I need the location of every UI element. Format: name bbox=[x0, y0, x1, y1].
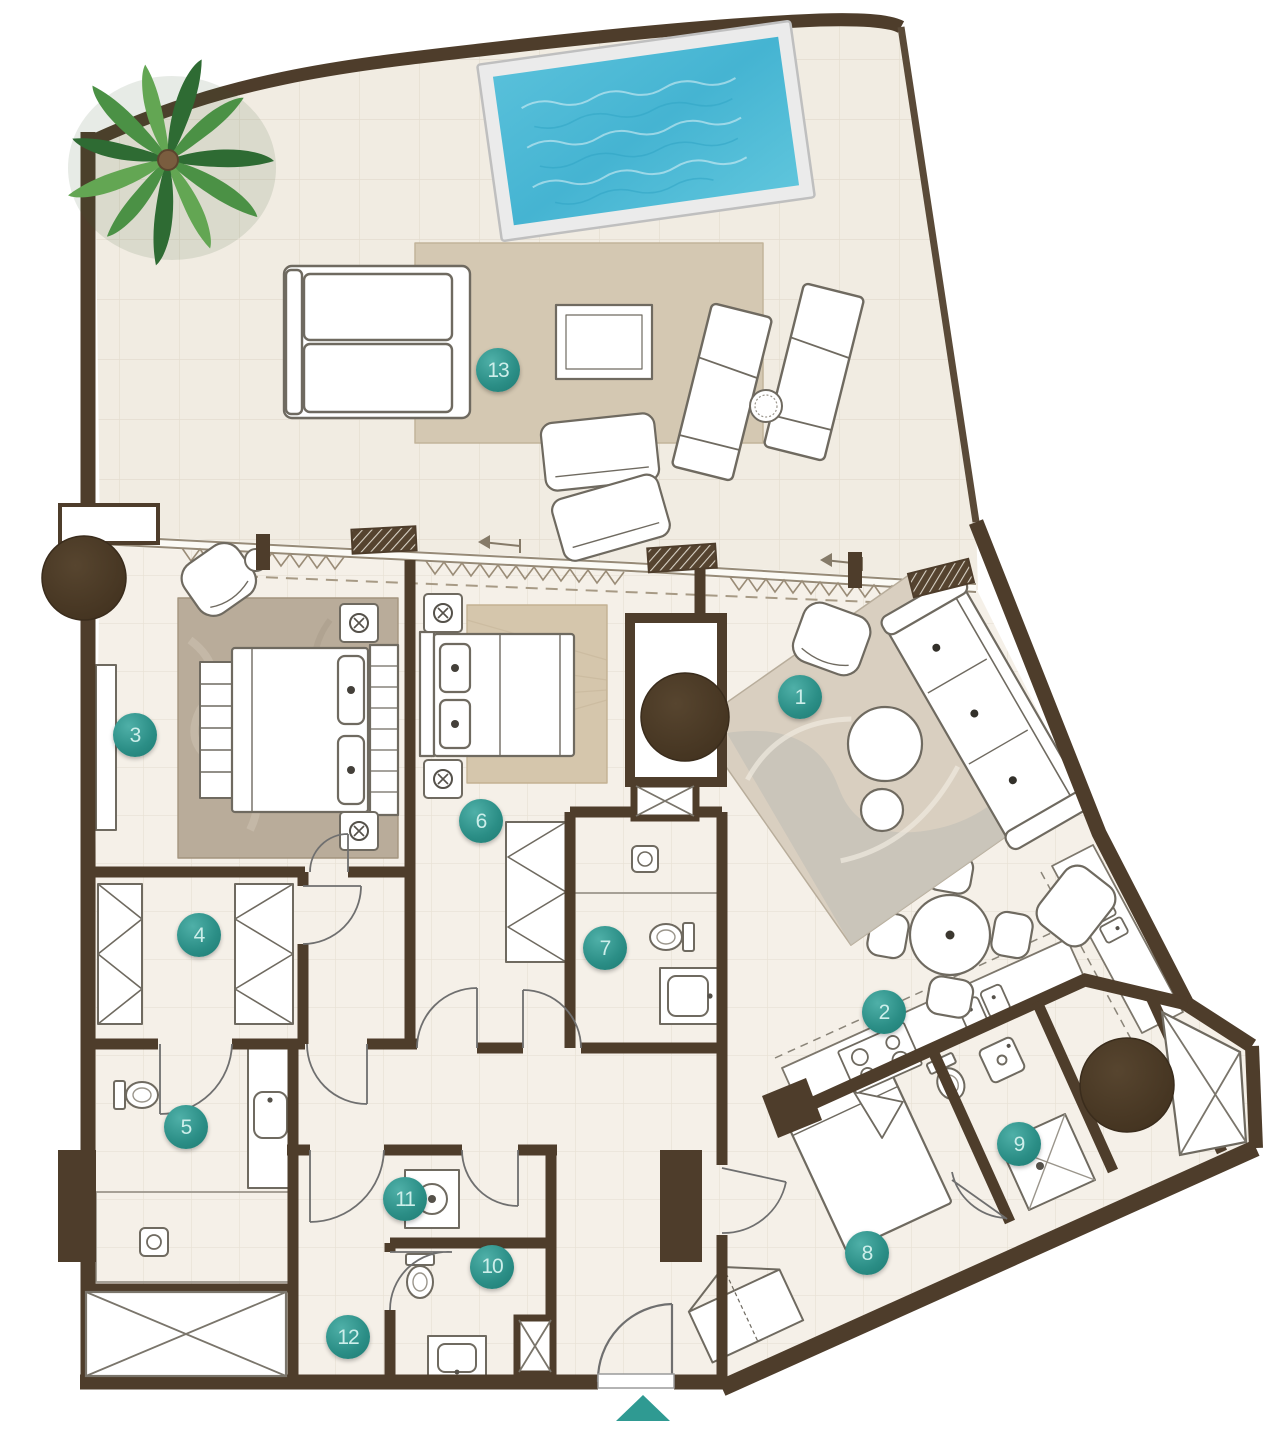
outdoor-sofa-icon bbox=[284, 266, 470, 418]
column-icon bbox=[1080, 1038, 1174, 1132]
column-icon bbox=[42, 536, 126, 620]
wall-pier bbox=[660, 1150, 702, 1262]
outdoor-coffee-table-icon bbox=[556, 305, 652, 379]
double-bed-icon bbox=[420, 632, 574, 756]
entrance-arrow-icon bbox=[616, 1395, 670, 1421]
coffee-table-icon bbox=[861, 789, 903, 831]
floor-plan-page: 12345678910111213 bbox=[0, 0, 1281, 1443]
laundry-fixtures bbox=[405, 1170, 459, 1228]
entrance-threshold bbox=[598, 1374, 674, 1388]
bed-bench-icon bbox=[200, 662, 232, 798]
wall-pier bbox=[58, 1150, 96, 1262]
entrance bbox=[598, 1374, 674, 1421]
dresser-icon bbox=[96, 665, 116, 830]
floor-plan bbox=[0, 0, 1281, 1443]
column-icon bbox=[641, 673, 729, 761]
coffee-table-icon bbox=[848, 707, 922, 781]
double-bed-icon bbox=[232, 645, 398, 815]
wardrobe-icon bbox=[506, 822, 566, 962]
